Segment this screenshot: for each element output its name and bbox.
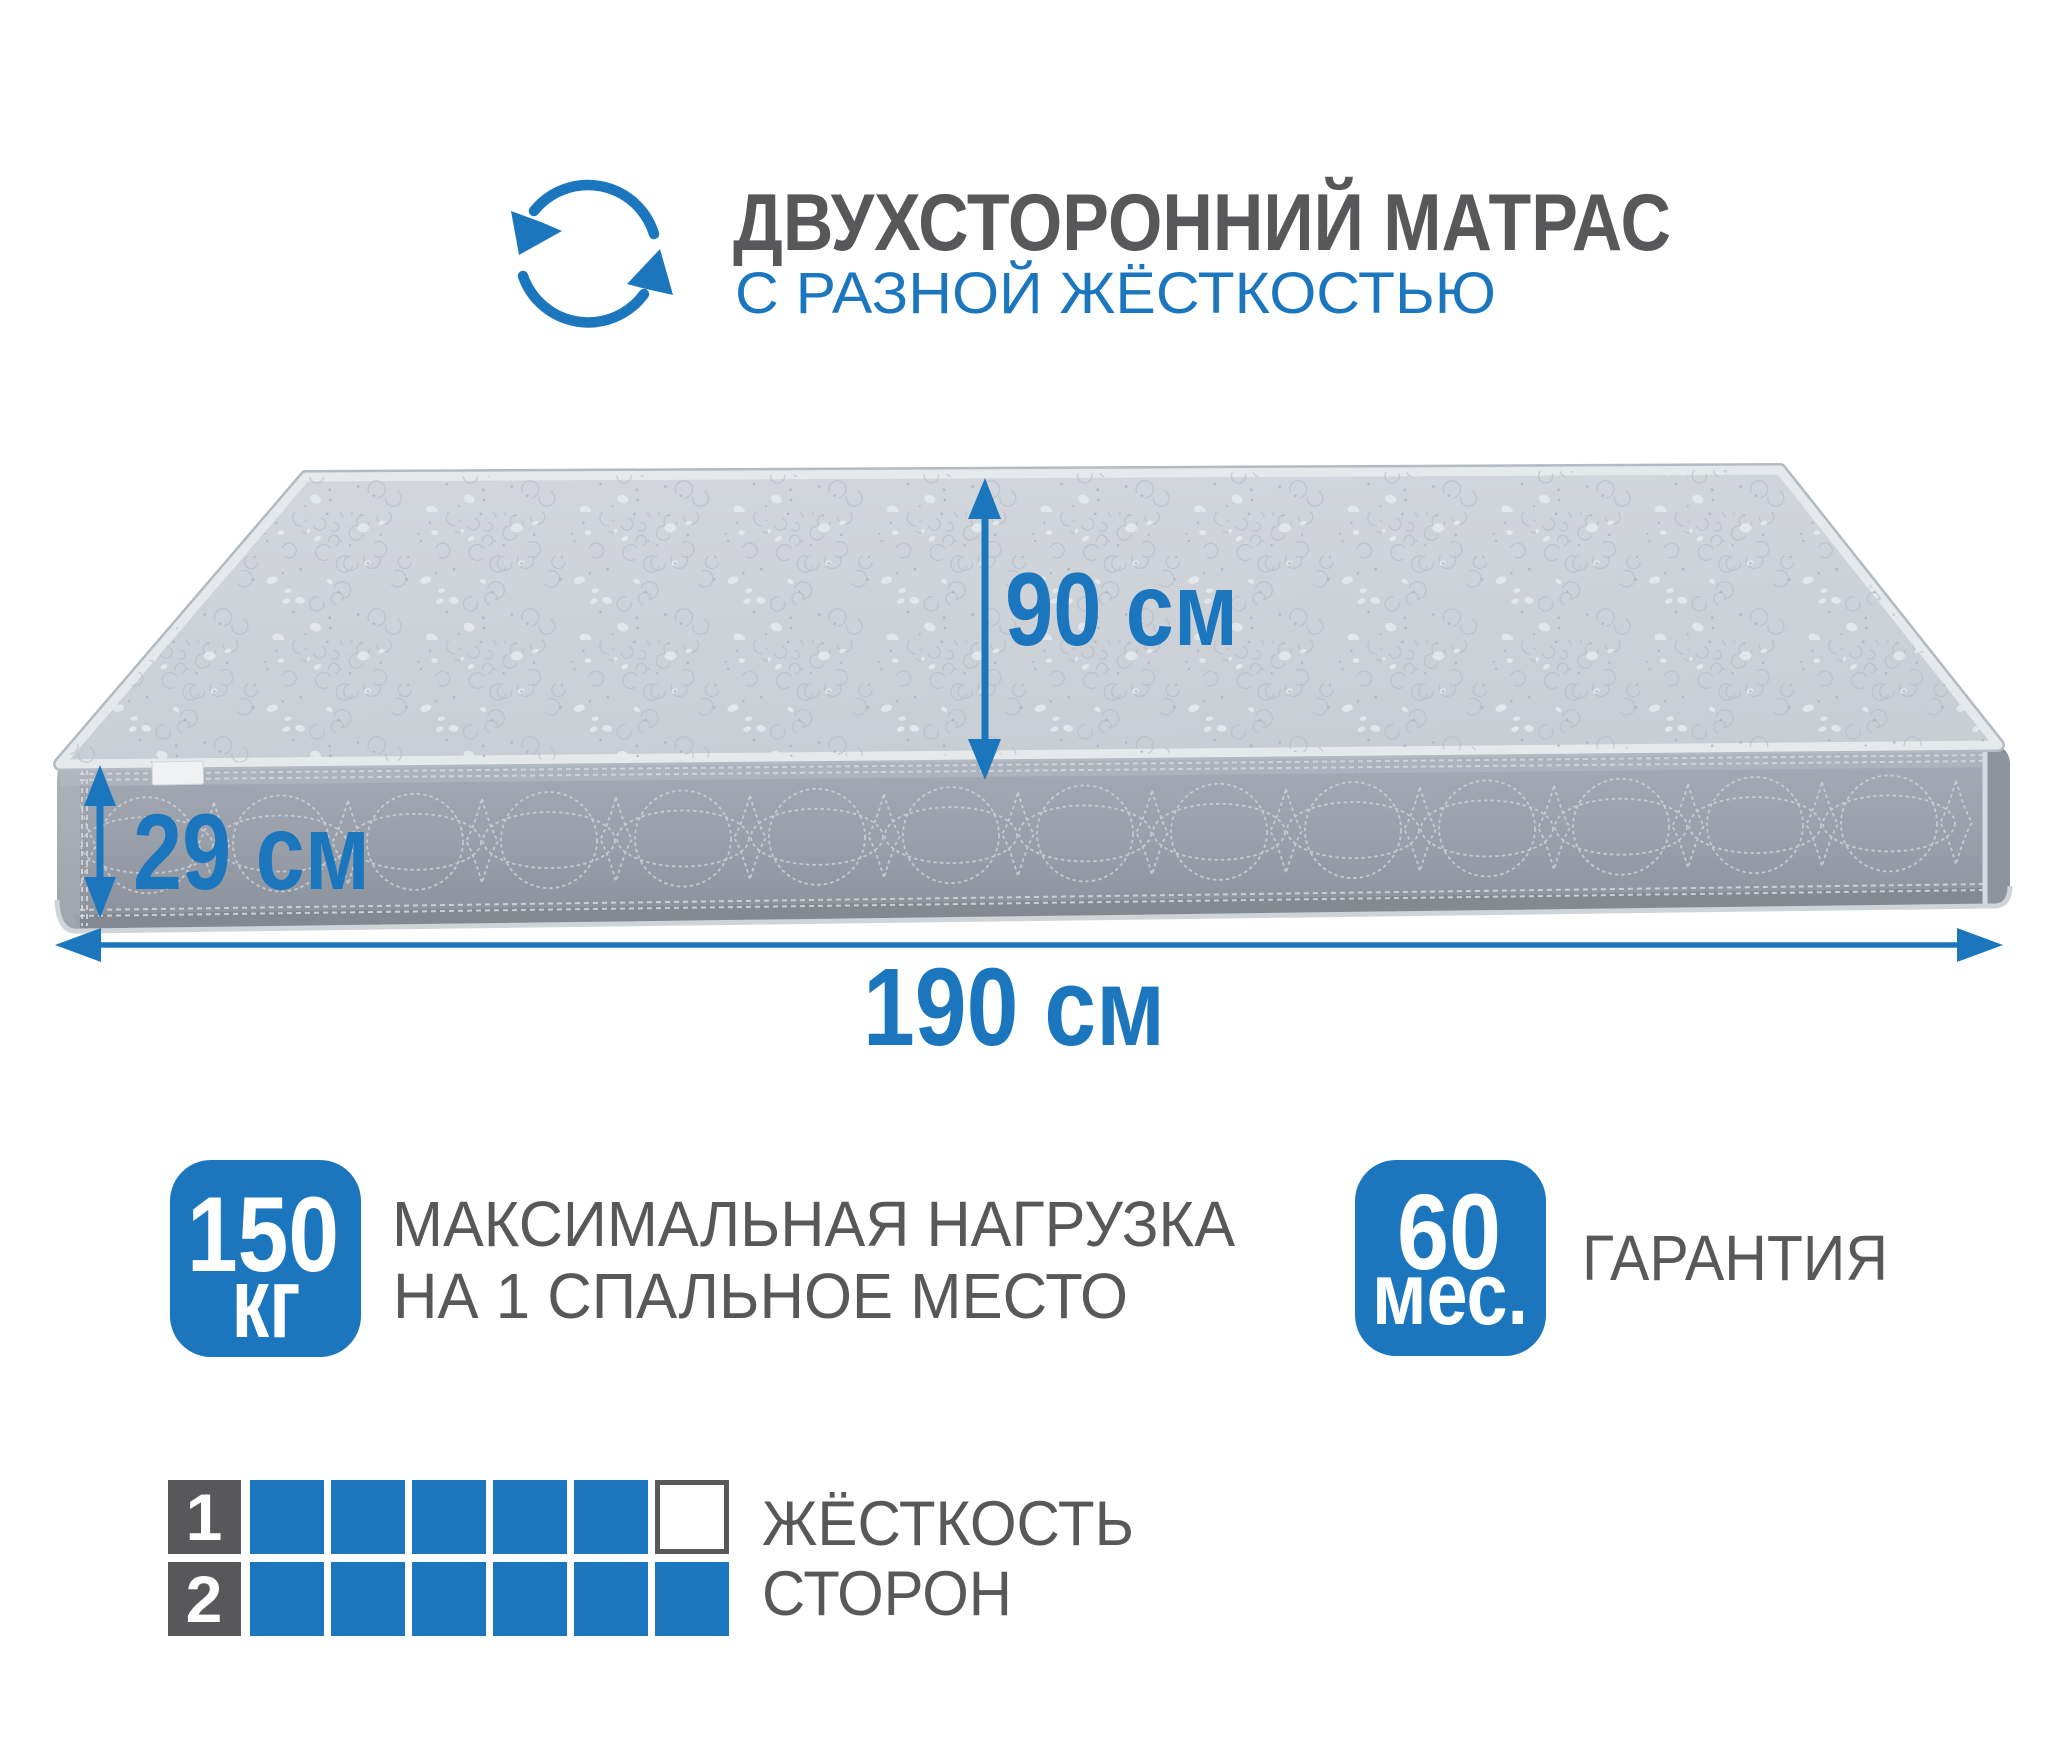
svg-text:мес.: мес. xyxy=(1372,1244,1528,1343)
svg-text:90 см: 90 см xyxy=(1005,552,1238,668)
svg-text:С РАЗНОЙ ЖЁСТКОСТЬЮ: С РАЗНОЙ ЖЁСТКОСТЬЮ xyxy=(735,261,1496,326)
svg-text:190 см: 190 см xyxy=(863,946,1165,1069)
svg-text:МАКСИМАЛЬНАЯ НАГРУЗКА: МАКСИМАЛЬНАЯ НАГРУЗКА xyxy=(392,1188,1235,1260)
svg-text:ГАРАНТИЯ: ГАРАНТИЯ xyxy=(1582,1222,1888,1294)
svg-text:29 см: 29 см xyxy=(133,791,370,912)
svg-text:1: 1 xyxy=(186,1480,223,1554)
svg-text:2: 2 xyxy=(186,1562,223,1636)
svg-text:ДВУХСТОРОННИЙ МАТРАС: ДВУХСТОРОННИЙ МАТРАС xyxy=(733,176,1671,268)
svg-text:кг: кг xyxy=(232,1247,301,1359)
svg-text:ЖЁСТКОСТЬ: ЖЁСТКОСТЬ xyxy=(762,1489,1134,1559)
svg-text:СТОРОН: СТОРОН xyxy=(762,1559,1012,1629)
svg-text:НА 1 СПАЛЬНОЕ МЕСТО: НА 1 СПАЛЬНОЕ МЕСТО xyxy=(393,1260,1128,1332)
